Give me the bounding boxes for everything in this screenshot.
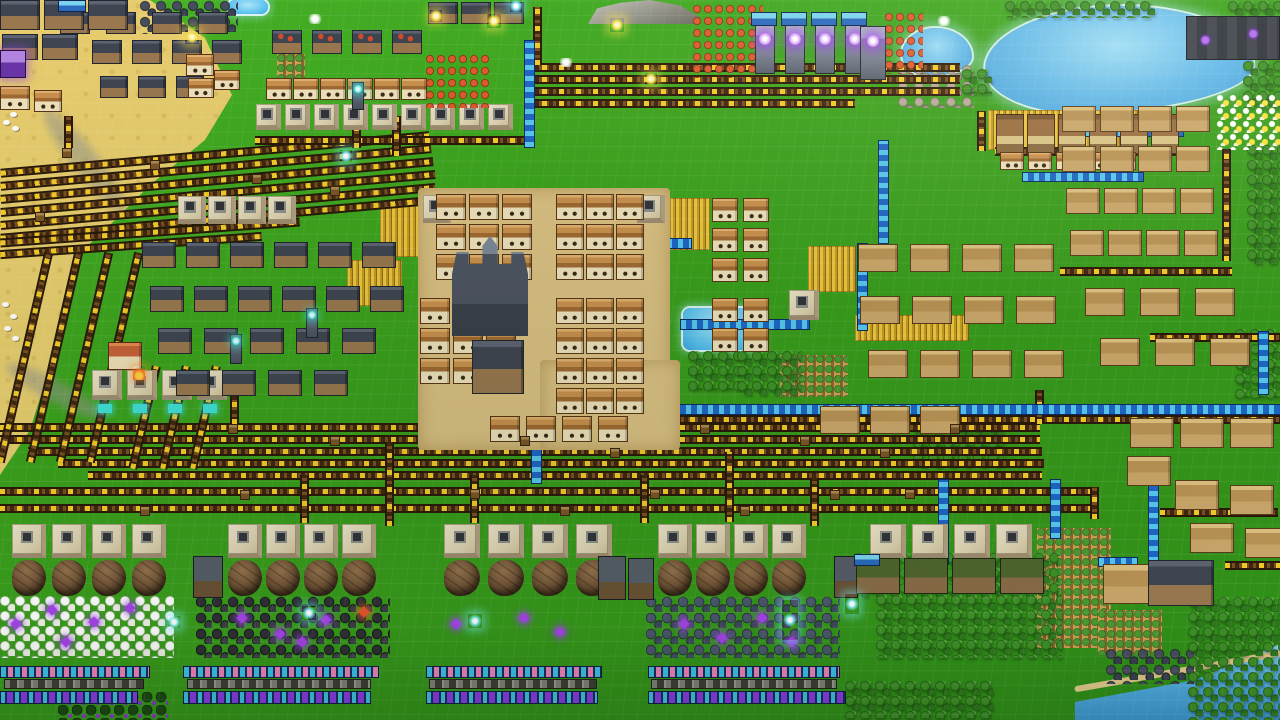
warehouse[interactable] — [92, 524, 126, 558]
item-pipe[interactable] — [1148, 481, 1159, 563]
stone-house[interactable] — [314, 370, 348, 396]
barn[interactable] — [1195, 288, 1235, 316]
teal-pad[interactable] — [168, 404, 182, 413]
belt-cart[interactable] — [330, 186, 340, 196]
loader-machine[interactable] — [841, 12, 867, 26]
loader-machine[interactable] — [58, 0, 86, 12]
arcane-machine[interactable] — [0, 50, 26, 78]
house[interactable] — [556, 358, 584, 384]
barn[interactable] — [868, 350, 908, 378]
house[interactable] — [556, 298, 584, 324]
teal-pad[interactable] — [133, 404, 147, 413]
conveyor-belt[interactable] — [725, 452, 734, 522]
barn[interactable] — [1180, 188, 1214, 214]
stone-house[interactable] — [176, 370, 210, 396]
warehouse[interactable] — [401, 104, 426, 130]
warehouse[interactable] — [912, 524, 948, 558]
barn[interactable] — [820, 406, 860, 434]
hopper-row[interactable] — [651, 679, 837, 689]
stone-house[interactable] — [250, 328, 284, 354]
gem-processing-line[interactable] — [0, 666, 150, 678]
belt-cart[interactable] — [240, 490, 250, 500]
conveyor-belt[interactable] — [1222, 149, 1231, 261]
teal-pad[interactable] — [203, 404, 217, 413]
mine-mound[interactable] — [734, 560, 768, 596]
barn[interactable] — [1140, 288, 1180, 316]
sparkle-effect — [487, 14, 501, 28]
relic-processing-line[interactable] — [648, 691, 846, 704]
stone-house[interactable] — [0, 0, 40, 30]
barn[interactable] — [1155, 338, 1195, 366]
house[interactable] — [401, 78, 427, 100]
sparkle-effect — [845, 594, 859, 614]
barn[interactable] — [1146, 230, 1180, 256]
barn[interactable] — [1138, 146, 1172, 172]
wheat-field[interactable] — [808, 246, 856, 292]
stone-house[interactable] — [326, 286, 360, 312]
tree-cluster — [688, 350, 740, 390]
barn[interactable] — [1070, 230, 1104, 256]
gem-processing-line[interactable] — [426, 666, 602, 678]
belt-cart[interactable] — [330, 436, 340, 446]
tree-cluster — [1188, 596, 1280, 720]
relic-processing-line[interactable] — [0, 691, 138, 704]
sheep — [12, 126, 19, 131]
belt-cart[interactable] — [228, 424, 238, 434]
storage-house[interactable] — [352, 30, 382, 54]
belt-cart[interactable] — [880, 448, 890, 458]
game-world-viewport[interactable] — [0, 0, 1280, 720]
mine-mound[interactable] — [532, 560, 568, 596]
tree-cluster — [1005, 0, 1155, 18]
barn[interactable] — [1184, 230, 1218, 256]
house[interactable] — [743, 198, 769, 222]
warehouse[interactable] — [372, 104, 397, 130]
loader-machine[interactable] — [811, 12, 837, 26]
warehouse[interactable] — [178, 196, 206, 224]
orchard-field[interactable] — [277, 54, 305, 78]
barn[interactable] — [1066, 188, 1100, 214]
house[interactable] — [188, 78, 214, 98]
belt-cart[interactable] — [470, 489, 480, 499]
tree-cluster — [962, 68, 992, 94]
house[interactable] — [562, 416, 592, 442]
sparkle-effect — [468, 614, 482, 628]
barn[interactable] — [870, 406, 910, 434]
barn[interactable] — [860, 296, 900, 324]
belt-cart[interactable] — [740, 506, 750, 516]
conveyor-belt[interactable] — [300, 475, 309, 523]
house[interactable] — [743, 298, 769, 322]
belt-cart[interactable] — [950, 424, 960, 434]
storage-house[interactable] — [392, 30, 422, 54]
stone-house[interactable] — [318, 242, 352, 268]
warehouse[interactable] — [954, 524, 990, 558]
barn[interactable] — [1016, 296, 1056, 324]
warehouse[interactable] — [444, 524, 480, 558]
gem-processing-line[interactable] — [183, 666, 379, 678]
house[interactable] — [374, 78, 400, 100]
stone-house[interactable] — [42, 34, 78, 60]
stone-house[interactable] — [342, 328, 376, 354]
house[interactable] — [556, 254, 584, 280]
conveyor-belt[interactable] — [64, 116, 73, 148]
warehouse[interactable] — [268, 196, 296, 224]
barn[interactable] — [972, 350, 1012, 378]
house[interactable] — [469, 194, 499, 220]
barn[interactable] — [1245, 528, 1280, 558]
mine-mound[interactable] — [52, 560, 86, 596]
house[interactable] — [586, 328, 614, 354]
shrine-tower[interactable] — [306, 308, 318, 338]
stone-house[interactable] — [222, 370, 256, 396]
warehouse[interactable] — [52, 524, 86, 558]
house[interactable] — [420, 328, 450, 354]
belt-cart[interactable] — [800, 436, 810, 446]
warehouse[interactable] — [696, 524, 730, 558]
conveyor-belt[interactable] — [977, 111, 986, 151]
stone-house[interactable] — [158, 328, 192, 354]
house[interactable] — [743, 328, 769, 352]
house[interactable] — [0, 86, 30, 110]
stone-house[interactable] — [268, 370, 302, 396]
barn[interactable] — [1180, 418, 1224, 448]
belt-cart[interactable] — [150, 160, 160, 170]
house[interactable] — [743, 258, 769, 282]
house[interactable] — [586, 358, 614, 384]
hopper-row[interactable] — [429, 679, 597, 689]
sparkle-effect — [510, 0, 522, 12]
mana-forge[interactable] — [785, 24, 805, 74]
item-pipe[interactable] — [1022, 172, 1144, 182]
loader-machine[interactable] — [751, 12, 777, 26]
warehouse[interactable] — [342, 524, 376, 558]
mine-mound[interactable] — [228, 560, 262, 596]
barn[interactable] — [920, 350, 960, 378]
item-pipe[interactable] — [1258, 331, 1269, 395]
item-pipe[interactable] — [524, 40, 535, 148]
belt-cart[interactable] — [905, 489, 915, 499]
conveyor-belt[interactable] — [0, 504, 1098, 513]
mana-forge[interactable] — [755, 24, 775, 74]
warehouse[interactable] — [314, 104, 339, 130]
house[interactable] — [586, 298, 614, 324]
mana-forge[interactable] — [815, 24, 835, 74]
conveyor-belt[interactable] — [0, 487, 1098, 496]
house[interactable] — [556, 388, 584, 414]
mine-hut[interactable] — [598, 556, 626, 600]
storage-house[interactable] — [272, 30, 302, 54]
house[interactable] — [712, 258, 738, 282]
barn[interactable] — [1138, 106, 1172, 132]
mine-hut[interactable] — [193, 556, 223, 598]
sheep — [10, 112, 17, 117]
mine-mound[interactable] — [132, 560, 166, 596]
mine-mound[interactable] — [772, 560, 806, 596]
house[interactable] — [598, 416, 628, 442]
conveyor-belt[interactable] — [1060, 267, 1232, 276]
stone-house[interactable] — [238, 286, 272, 312]
relic-processing-line[interactable] — [183, 691, 371, 704]
lumber-hut[interactable] — [952, 558, 996, 594]
house[interactable] — [616, 254, 644, 280]
barrel-storage[interactable] — [426, 54, 492, 108]
belt-cart[interactable] — [252, 174, 262, 184]
belt-cart[interactable] — [140, 506, 150, 516]
barn[interactable] — [1108, 230, 1142, 256]
house[interactable] — [586, 254, 614, 280]
tree-cluster — [1247, 144, 1280, 264]
barn[interactable] — [1190, 523, 1234, 553]
barn[interactable] — [1210, 338, 1250, 366]
house[interactable] — [616, 388, 644, 414]
house[interactable] — [320, 78, 346, 100]
tree-cluster — [737, 350, 801, 396]
loader-machine[interactable] — [854, 554, 880, 566]
item-pipe[interactable] — [1050, 479, 1061, 539]
conveyor-belt[interactable] — [1090, 487, 1099, 519]
mine-hut[interactable] — [628, 558, 654, 600]
house[interactable] — [1000, 152, 1024, 170]
tree-cluster — [876, 594, 1062, 658]
stone-house[interactable] — [274, 242, 308, 268]
mine-mound[interactable] — [12, 560, 46, 596]
gem-processing-line[interactable] — [648, 666, 840, 678]
cloud-puff — [560, 58, 572, 67]
house[interactable] — [436, 194, 466, 220]
shrine-tower[interactable] — [230, 334, 242, 364]
house[interactable] — [502, 224, 532, 250]
house[interactable] — [556, 224, 584, 250]
house[interactable] — [186, 54, 214, 76]
dark-fortress[interactable] — [1186, 16, 1280, 60]
house[interactable] — [616, 224, 644, 250]
relic-processing-line[interactable] — [426, 691, 598, 704]
house[interactable] — [586, 224, 614, 250]
flame-effect — [133, 366, 145, 380]
stone-house[interactable] — [138, 76, 166, 98]
warehouse[interactable] — [532, 524, 568, 558]
belt-cart[interactable] — [830, 490, 840, 500]
barn[interactable] — [1100, 338, 1140, 366]
lumber-hut[interactable] — [904, 558, 948, 594]
warehouse[interactable] — [304, 524, 338, 558]
barn[interactable] — [1130, 418, 1174, 448]
barrel-storage[interactable] — [885, 12, 923, 74]
stone-house[interactable] — [142, 242, 176, 268]
belt-cart[interactable] — [62, 148, 72, 158]
warehouse[interactable] — [734, 524, 768, 558]
stone-house[interactable] — [152, 12, 182, 34]
conveyor-belt[interactable] — [470, 475, 479, 523]
belt-cart[interactable] — [610, 448, 620, 458]
stone-house[interactable] — [132, 40, 162, 64]
coal-deposit[interactable] — [196, 596, 390, 658]
barn[interactable] — [1175, 480, 1219, 510]
warehouse[interactable] — [488, 524, 524, 558]
stone-house[interactable] — [212, 40, 242, 64]
mine-mound[interactable] — [444, 560, 480, 596]
house[interactable] — [556, 194, 584, 220]
cotton-deposit[interactable] — [0, 596, 174, 658]
dark-rock-pile — [1106, 648, 1194, 684]
barn[interactable] — [1142, 188, 1176, 214]
sparkle-effect — [610, 18, 624, 32]
conveyor-belt[interactable] — [525, 87, 960, 96]
barn[interactable] — [1024, 350, 1064, 378]
stone-house[interactable] — [362, 242, 396, 268]
item-pipe[interactable] — [878, 140, 889, 244]
conveyor-belt[interactable] — [385, 442, 394, 526]
house[interactable] — [266, 78, 292, 100]
stone-house[interactable] — [186, 242, 220, 268]
house[interactable] — [616, 194, 644, 220]
stone-house[interactable] — [472, 340, 524, 394]
warehouse[interactable] — [772, 524, 806, 558]
warehouse[interactable] — [266, 524, 300, 558]
barn[interactable] — [1100, 106, 1134, 132]
barn[interactable] — [1100, 146, 1134, 172]
sparkle-effect — [645, 73, 657, 85]
stone-house[interactable] — [1148, 560, 1214, 606]
house[interactable] — [293, 78, 319, 100]
warehouse[interactable] — [576, 524, 612, 558]
barn[interactable] — [1014, 244, 1054, 272]
belt-cart[interactable] — [560, 506, 570, 516]
barn[interactable] — [1230, 418, 1274, 448]
house[interactable] — [712, 328, 738, 352]
belt-cart[interactable] — [35, 212, 45, 222]
hopper-row[interactable] — [4, 679, 144, 689]
warehouse[interactable] — [92, 370, 122, 400]
barn[interactable] — [912, 296, 952, 324]
house[interactable] — [214, 70, 240, 90]
barn[interactable] — [1062, 106, 1096, 132]
storage-house[interactable] — [312, 30, 342, 54]
warehouse[interactable] — [789, 290, 819, 320]
slate-deposit[interactable] — [646, 596, 840, 658]
shrine-tower[interactable] — [352, 82, 364, 110]
barn[interactable] — [858, 244, 898, 272]
mine-mound[interactable] — [342, 560, 376, 596]
sparkle-effect — [430, 10, 442, 22]
barn[interactable] — [1085, 288, 1125, 316]
stone-house[interactable] — [198, 12, 228, 34]
stone-house[interactable] — [230, 242, 264, 268]
house[interactable] — [712, 198, 738, 222]
barn[interactable] — [1230, 485, 1274, 515]
tree-cluster — [845, 680, 993, 718]
house[interactable] — [34, 90, 62, 112]
grain-barn[interactable] — [996, 114, 1024, 154]
barn[interactable] — [1176, 146, 1210, 172]
sparkle-effect — [340, 150, 352, 162]
lumber-hut[interactable] — [1000, 558, 1044, 594]
stone-house[interactable] — [150, 286, 184, 312]
conveyor-belt[interactable] — [525, 99, 855, 108]
conveyor-belt[interactable] — [1225, 561, 1280, 570]
mine-mound[interactable] — [266, 560, 300, 596]
sheep — [2, 302, 9, 307]
sheep — [10, 314, 17, 319]
house[interactable] — [743, 228, 769, 252]
warehouse[interactable] — [256, 104, 281, 130]
house[interactable] — [436, 224, 466, 250]
warehouse[interactable] — [228, 524, 262, 558]
warehouse[interactable] — [238, 196, 266, 224]
house[interactable] — [616, 298, 644, 324]
cliff-rock — [588, 0, 700, 24]
warehouse[interactable] — [996, 524, 1032, 558]
belt-cart[interactable] — [520, 436, 530, 446]
teal-pad[interactable] — [98, 404, 112, 413]
sparkle-effect — [168, 616, 180, 628]
house[interactable] — [586, 388, 614, 414]
stone-house[interactable] — [100, 76, 128, 98]
barn[interactable] — [1104, 188, 1138, 214]
house[interactable] — [490, 416, 520, 442]
conveyor-belt[interactable] — [810, 478, 819, 526]
stone-house[interactable] — [194, 286, 228, 312]
house[interactable] — [420, 298, 450, 324]
loader-machine[interactable] — [781, 12, 807, 26]
house[interactable] — [616, 328, 644, 354]
house[interactable] — [712, 298, 738, 322]
barn[interactable] — [1062, 146, 1096, 172]
house[interactable] — [556, 328, 584, 354]
sheep — [4, 326, 11, 331]
stone-house[interactable] — [92, 40, 122, 64]
barn[interactable] — [962, 244, 1002, 272]
barn[interactable] — [964, 296, 1004, 324]
house[interactable] — [502, 194, 532, 220]
warehouse[interactable] — [208, 196, 236, 224]
mine-mound[interactable] — [488, 560, 524, 596]
mine-mound[interactable] — [92, 560, 126, 596]
conveyor-belt[interactable] — [58, 459, 1044, 468]
barn[interactable] — [1176, 106, 1210, 132]
barn[interactable] — [910, 244, 950, 272]
warehouse[interactable] — [12, 524, 46, 558]
conveyor-belt[interactable] — [640, 475, 649, 523]
house[interactable] — [616, 358, 644, 384]
grain-barn[interactable] — [1027, 114, 1055, 154]
warehouse[interactable] — [870, 524, 906, 558]
mana-forge[interactable] — [860, 26, 886, 80]
mine-mound[interactable] — [658, 560, 692, 596]
house[interactable] — [586, 194, 614, 220]
mine-mound[interactable] — [696, 560, 730, 596]
stone-house[interactable] — [370, 286, 404, 312]
house[interactable] — [1028, 152, 1052, 170]
sparkle-effect — [302, 606, 316, 620]
house[interactable] — [420, 358, 450, 384]
house[interactable] — [526, 416, 556, 442]
belt-cart[interactable] — [700, 424, 710, 434]
warehouse[interactable] — [285, 104, 310, 130]
warehouse[interactable] — [658, 524, 692, 558]
sparkle-effect — [782, 600, 798, 640]
belt-cart[interactable] — [650, 489, 660, 499]
mine-mound[interactable] — [304, 560, 338, 596]
conveyor-belt[interactable] — [88, 471, 1042, 480]
barn[interactable] — [1127, 456, 1171, 486]
cloud-puff — [936, 16, 952, 26]
warehouse[interactable] — [132, 524, 166, 558]
house[interactable] — [712, 228, 738, 252]
hopper-row[interactable] — [187, 679, 371, 689]
stone-house[interactable] — [88, 0, 128, 30]
